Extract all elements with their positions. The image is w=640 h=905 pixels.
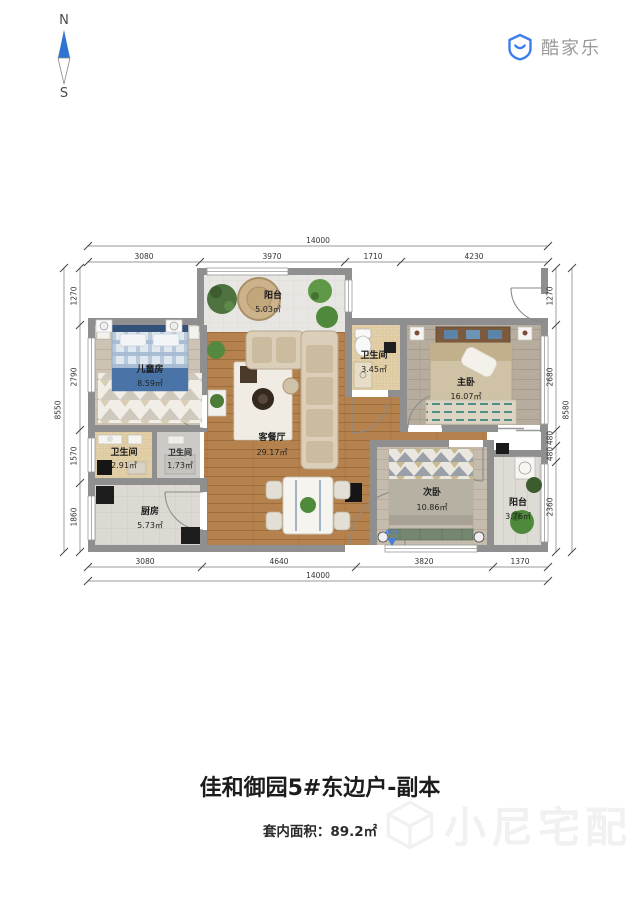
watermark: 小尼宅配 (384, 794, 632, 855)
dim-left-seg-3: 1860 (70, 507, 79, 526)
room-name-balcony-east: 阳台 (509, 496, 527, 508)
entry-door-label: A02 (385, 528, 399, 536)
room-area-bathroom-west: 2.91㎡ (111, 461, 137, 470)
room-area-second-bedroom: 10.86㎡ (417, 503, 448, 512)
dim-top-seg-1: 3970 (262, 252, 281, 261)
dim-left-seg-2: 1570 (70, 446, 79, 465)
dim-bottom-seg-3: 1370 (510, 557, 529, 566)
room-area-master-bedroom: 16.07㎡ (451, 392, 482, 401)
room-area-bathroom-north: 3.45㎡ (361, 365, 387, 374)
dim-right-seg-3: 480 (546, 447, 555, 462)
dim-left-overall: 8550 (54, 400, 63, 419)
dim-right-seg-2: 480 (546, 431, 555, 446)
dim-right-seg-1: 2680 (546, 367, 555, 386)
room-name-second-bedroom: 次卧 (423, 486, 441, 498)
room-area-kids-room: 8.59㎡ (137, 379, 163, 388)
room-name-bathroom-small: 卫生间 (168, 447, 192, 457)
room-name-kids-room: 儿童房 (135, 363, 163, 375)
room-name-balcony-north: 阳台 (264, 289, 282, 301)
dim-left-seg-1: 2790 (70, 367, 79, 386)
dim-top-seg-0: 3080 (134, 252, 153, 261)
dim-left-seg-0: 1270 (70, 286, 79, 305)
dim-top-seg-3: 4230 (464, 252, 483, 261)
room-area-kitchen: 5.73㎡ (137, 521, 163, 530)
room-area-bathroom-small: 1.73㎡ (167, 461, 193, 470)
dim-bottom-seg-1: 4640 (269, 557, 288, 566)
room-name-bathroom-north: 卫生间 (360, 349, 387, 361)
room-name-bathroom-west: 卫生间 (110, 446, 137, 458)
dim-bottom-seg-2: 3820 (414, 557, 433, 566)
watermark-cube-icon (384, 799, 436, 851)
floorplan-page: N S 酷家乐 (0, 0, 640, 905)
dim-top-overall: 14000 (306, 236, 330, 245)
room-area-balcony-north: 5.03㎡ (255, 305, 281, 314)
dim-top-seg-2: 1710 (363, 252, 382, 261)
room-name-master-bedroom: 主卧 (457, 376, 475, 388)
dim-bottom-overall: 14000 (306, 571, 330, 580)
room-name-living-dining: 客餐厅 (257, 431, 285, 443)
watermark-text: 小尼宅配 (444, 794, 632, 855)
dim-right-overall: 8580 (562, 400, 571, 419)
dim-right-seg-0: 1270 (546, 286, 555, 305)
room-name-kitchen: 厨房 (141, 505, 159, 517)
dim-right-seg-4: 2360 (546, 497, 555, 516)
room-area-balcony-east: 3.76㎡ (505, 512, 531, 521)
dim-bottom-seg-0: 3080 (135, 557, 154, 566)
room-area-living-dining: 29.17㎡ (257, 448, 288, 457)
